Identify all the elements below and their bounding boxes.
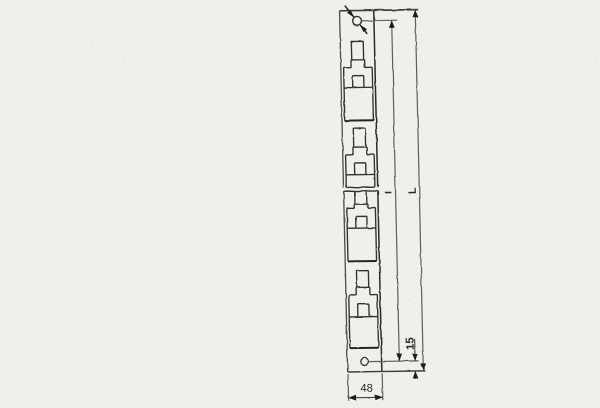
svg-text:48: 48 (360, 383, 373, 395)
svg-text:15: 15 (404, 337, 416, 351)
svg-text:L: L (407, 187, 419, 194)
